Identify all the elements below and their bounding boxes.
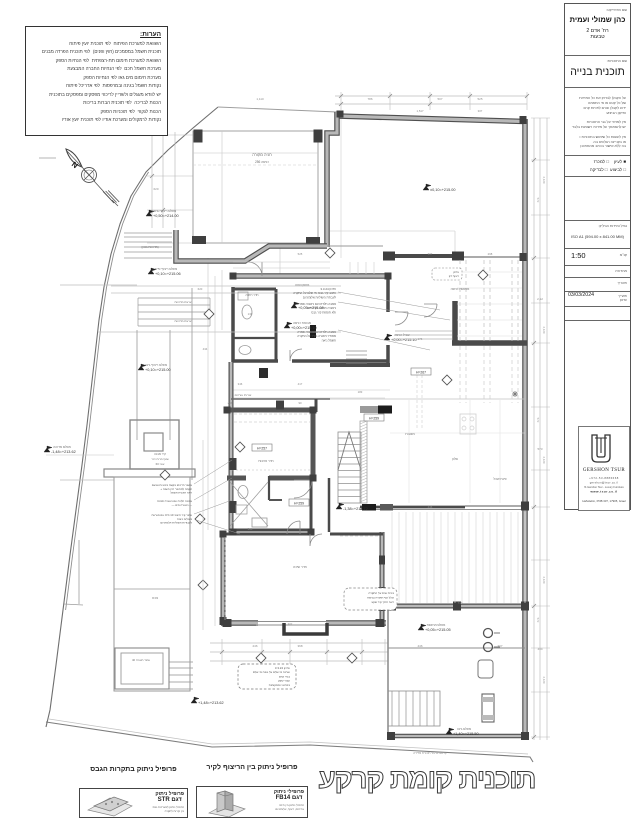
svg-text:1,110: 1,110	[256, 97, 264, 101]
svg-text:246: 246	[252, 644, 257, 648]
svg-text:307: 307	[478, 109, 483, 113]
svg-text:מפלס ריצוף טרסה: מפלס ריצוף טרסה	[152, 209, 176, 213]
svg-text:302: 302	[288, 622, 293, 626]
svg-text:573: 573	[536, 198, 540, 203]
svg-text:www.tsur.co.il: www.tsur.co.il	[589, 490, 617, 494]
svg-text:2,12: 2,12	[537, 297, 543, 301]
svg-text:573: 573	[536, 418, 540, 423]
svg-text:סלון: סלון	[452, 457, 459, 461]
svg-text:חשמל ניאה: חשמל ניאה	[322, 338, 336, 342]
svg-text:434: 434	[537, 647, 542, 651]
svg-text:786: 786	[367, 97, 372, 101]
svg-text:+0,05=+215.05: +0,05=+215.05	[425, 628, 451, 632]
svg-text:קיר מבנה: קיר מבנה	[154, 452, 166, 456]
svg-text:במראוי וממקומות: במראוי וממקומות	[269, 683, 291, 687]
svg-text:H=259: H=259	[369, 417, 379, 421]
svg-text:620: 620	[198, 287, 203, 291]
svg-text:573: 573	[537, 447, 542, 451]
svg-text:+0,10=+215.06: +0,10=+215.06	[155, 272, 181, 276]
svg-text:מחסן ועזרה: מחסן ועזרה	[295, 283, 310, 287]
svg-text:+0,50=+214.00: +0,50=+214.00	[153, 214, 179, 218]
svg-text:פינת אוכל: פינת אוכל	[493, 477, 506, 481]
svg-text:2,120: 2,120	[542, 457, 546, 464]
svg-text:H=259: H=259	[294, 502, 304, 506]
svg-text:חדר שינה: חדר שינה	[293, 565, 307, 569]
svg-text:קו מגרש לפי תוכנית מדידה: קו מגרש לפי תוכנית מדידה	[413, 751, 447, 755]
svg-text:525: 525	[298, 252, 303, 256]
svg-text:417: 417	[298, 382, 303, 386]
svg-text:חדר רחצה: חדר רחצה	[245, 293, 258, 297]
svg-text:446: 446	[417, 644, 422, 648]
svg-text:כולל גוף תאורה בנישה: כולל גוף תאורה בנישה	[367, 596, 394, 600]
svg-text:N: N	[70, 160, 80, 170]
svg-text:GERSHON TSUR: GERSHON TSUR	[583, 468, 626, 473]
svg-text:+0,00=+215.10: +0,00=+215.10	[391, 338, 417, 342]
svg-text:246: 246	[228, 401, 233, 405]
svg-text:חניה מקורה: חניה מקורה	[252, 152, 272, 157]
svg-text:מפלס מרפסת: מפלס מרפסת	[427, 623, 446, 627]
svg-text:±0,10=+215.00: ±0,10=+215.00	[430, 188, 456, 192]
svg-text:176: 176	[418, 337, 423, 341]
svg-text:620: 620	[153, 187, 158, 191]
svg-text:2,120: 2,120	[542, 327, 546, 334]
svg-text:ערוגת מדרגות: ערוגת מדרגות	[175, 300, 192, 304]
svg-text:90: 90	[298, 401, 302, 405]
svg-text:710: 710	[458, 601, 463, 605]
svg-text:ריצוף דק: ריצוף דק	[449, 274, 460, 278]
svg-text:ראה תוכנית חשמל: ראה תוכנית חשמל	[170, 491, 192, 495]
svg-text:ערוגת מדרגות: ערוגת מדרגות	[175, 319, 192, 323]
svg-text:מבואת כניסה: מבואת כניסה	[293, 321, 311, 325]
svg-text:עובי 60: עובי 60	[156, 462, 165, 466]
svg-text:לעבודת השוליות אלומיניום: לעבודת השוליות אלומיניום	[303, 295, 336, 299]
svg-text:עמוד תאורה 40: עמוד תאורה 40	[132, 658, 150, 662]
svg-text:307: 307	[497, 644, 502, 648]
svg-text:1,517: 1,517	[417, 109, 424, 113]
svg-text:ראה חתך קיר שקע: ראה חתך קיר שקע	[371, 600, 394, 604]
svg-text:(מדרגות בטון): (מדרגות בטון)	[141, 245, 158, 249]
svg-text:שצף מרוח כיור: שצף מרוח כיור	[151, 457, 168, 461]
svg-text:268: 268	[488, 252, 493, 256]
svg-text:+972-53-8886668: +972-53-8886668	[589, 476, 619, 480]
svg-text:2,120: 2,120	[542, 677, 546, 684]
svg-text:2,120: 2,120	[542, 577, 546, 584]
svg-text:מפלס גינה: מפלס גינה	[457, 727, 471, 731]
svg-text:434: 434	[203, 347, 208, 351]
svg-text:gershon@tsur.co.il: gershon@tsur.co.il	[590, 481, 619, 485]
svg-text:חדר ארונות: חדר ארונות	[258, 459, 273, 463]
svg-text:מפלס ריצוף פיים: מפלס ריצוף פיים	[155, 267, 177, 271]
svg-text:מטבח: מטבח	[405, 432, 415, 436]
svg-text:130: 130	[248, 312, 253, 316]
svg-text:-1,48=+213.62: -1,48=+213.62	[51, 450, 76, 454]
svg-text:שירותי אורחים: שירותי אורחים	[235, 393, 252, 397]
svg-text:+1,40=+215.50: +1,40=+215.50	[453, 732, 479, 736]
svg-text:+0,10=+215.00: +0,10=+215.00	[145, 368, 171, 372]
svg-text:בניית גבס על התקרה: בניית גבס על התקרה	[368, 591, 394, 595]
svg-text:— ניאגרה מים —: — ניאגרה מים —	[172, 503, 193, 507]
svg-text:368: 368	[297, 644, 302, 648]
svg-text:346: 346	[238, 382, 243, 386]
svg-text:-1,38=+213.72: -1,38=+213.72	[343, 507, 368, 511]
svg-text:מפלס מדרגה: מפלס מדרגה	[53, 445, 71, 449]
svg-text:לעבודות השוליות אלומיניום: לעבודות השוליות אלומיניום	[160, 521, 192, 525]
svg-text:446: 446	[428, 505, 433, 509]
svg-text:268: 268	[248, 527, 253, 531]
svg-text:+1,48=+213.62: +1,48=+213.62	[198, 701, 224, 705]
svg-text:573: 573	[536, 618, 540, 623]
svg-text:H=267: H=267	[416, 371, 426, 375]
svg-text:מרפסת כניסה: מרפסת כניסה	[451, 287, 470, 291]
svg-text:H=257: H=257	[257, 447, 267, 451]
svg-text:HaSolelim, POB 337, 17905, Isr: HaSolelim, POB 337, 17905, Israel	[582, 499, 626, 503]
svg-text:כניסה 256: כניסה 256	[255, 160, 269, 164]
svg-text:2,120: 2,120	[542, 177, 546, 184]
svg-text:507: 507	[437, 97, 442, 101]
svg-text:גינה: גינה	[152, 596, 159, 600]
svg-text:307: 307	[428, 252, 433, 256]
svg-text:ולא תוספת קיר גבס: ולא תוספת קיר גבס	[311, 310, 336, 314]
svg-text:183: 183	[358, 390, 363, 394]
svg-text:fb Gershon Tsur - Luxury Furni: fb Gershon Tsur - Luxury Furniture	[584, 485, 624, 489]
svg-text:525: 525	[477, 97, 482, 101]
svg-text:מפלס ריצוף גינה: מפלס ריצוף גינה	[145, 363, 167, 367]
